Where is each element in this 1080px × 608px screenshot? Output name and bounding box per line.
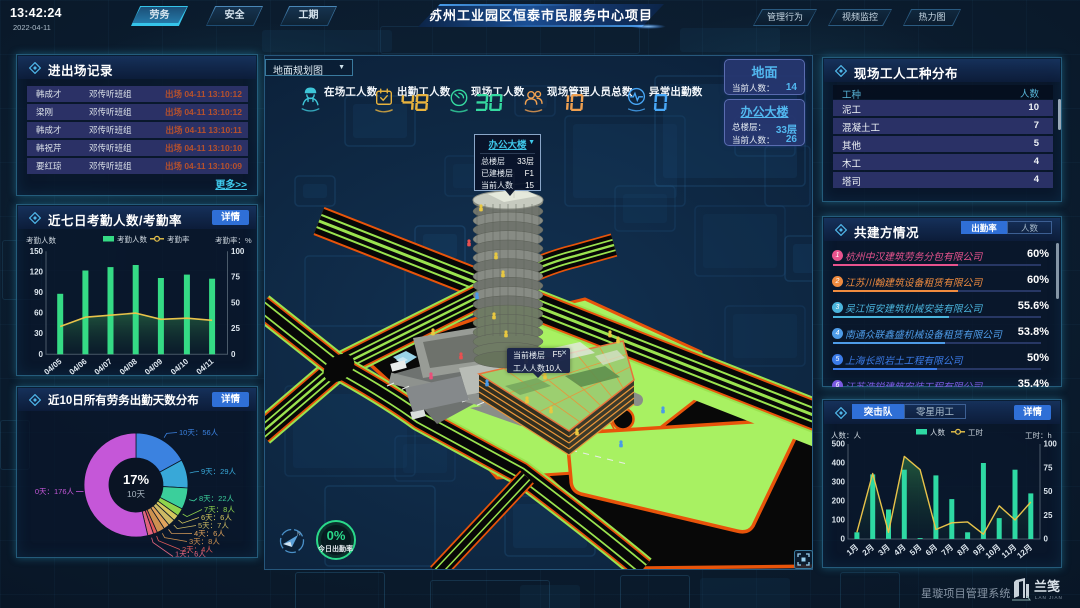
svg-text:75: 75 <box>231 273 240 282</box>
svg-text:30: 30 <box>34 329 43 338</box>
svg-text:考勤人数: 考勤人数 <box>117 234 147 244</box>
svg-text:0: 0 <box>841 535 846 544</box>
svg-text:60: 60 <box>34 309 43 318</box>
svg-text:10天: 10天 <box>127 489 145 499</box>
svg-text:8月: 8月 <box>956 543 971 558</box>
svg-text:04/07: 04/07 <box>93 357 115 375</box>
svg-text:4月: 4月 <box>892 543 907 558</box>
svg-text:04/09: 04/09 <box>143 357 165 375</box>
svg-text:0: 0 <box>231 350 236 359</box>
svg-text:2月: 2月 <box>861 543 876 558</box>
svg-text:25: 25 <box>231 324 240 333</box>
svg-text:100: 100 <box>832 516 846 525</box>
svg-text:04/11: 04/11 <box>195 357 216 375</box>
svg-text:100: 100 <box>1044 440 1058 449</box>
svg-text:400: 400 <box>832 459 846 468</box>
svg-text:9天：29人: 9天：29人 <box>201 467 237 476</box>
svg-text:考勤率：%: 考勤率：% <box>215 235 252 245</box>
svg-text:75: 75 <box>1044 463 1053 472</box>
svg-text:90: 90 <box>34 288 43 297</box>
svg-text:10月: 10月 <box>984 543 1003 561</box>
svg-text:04/05: 04/05 <box>42 357 64 375</box>
svg-text:工时：h: 工时：h <box>1025 430 1052 440</box>
svg-text:120: 120 <box>30 267 44 276</box>
svg-text:500: 500 <box>832 440 846 449</box>
svg-text:04/06: 04/06 <box>68 357 90 375</box>
svg-text:考勤率: 考勤率 <box>167 234 190 244</box>
svg-text:人数: 人数 <box>930 427 945 437</box>
svg-text:150: 150 <box>30 247 44 256</box>
svg-text:考勤人数: 考勤人数 <box>26 235 56 245</box>
svg-text:N: N <box>297 532 301 538</box>
svg-text:1天：6人: 1天：6人 <box>175 550 206 558</box>
svg-text:0: 0 <box>1044 535 1049 544</box>
svg-text:50: 50 <box>1044 487 1053 496</box>
svg-text:300: 300 <box>832 478 846 487</box>
svg-text:7月: 7月 <box>940 543 955 558</box>
svg-text:12月: 12月 <box>1015 543 1034 561</box>
svg-text:1月: 1月 <box>845 543 860 558</box>
svg-text:兰笺: 兰笺 <box>1034 579 1060 594</box>
svg-text:0天：176人: 0天：176人 <box>35 487 75 496</box>
svg-text:200: 200 <box>832 497 846 506</box>
svg-text:3月: 3月 <box>876 543 891 558</box>
svg-text:6月: 6月 <box>924 543 939 558</box>
svg-text:04/08: 04/08 <box>118 357 140 375</box>
svg-text:17%: 17% <box>123 472 149 487</box>
svg-text:50: 50 <box>231 298 240 307</box>
svg-text:25: 25 <box>1044 511 1053 520</box>
svg-text:11月: 11月 <box>1000 543 1018 560</box>
svg-text:LAN JIAN: LAN JIAN <box>1035 595 1063 600</box>
svg-text:100: 100 <box>231 247 245 256</box>
svg-text:04/10: 04/10 <box>169 357 191 375</box>
svg-text:工时: 工时 <box>968 427 983 437</box>
svg-text:5月: 5月 <box>908 543 923 558</box>
svg-text:8天：22人: 8天：22人 <box>199 494 235 503</box>
svg-text:0: 0 <box>39 350 44 359</box>
svg-text:10天：56人: 10天：56人 <box>179 428 219 437</box>
svg-text:人数：人: 人数：人 <box>831 430 861 440</box>
